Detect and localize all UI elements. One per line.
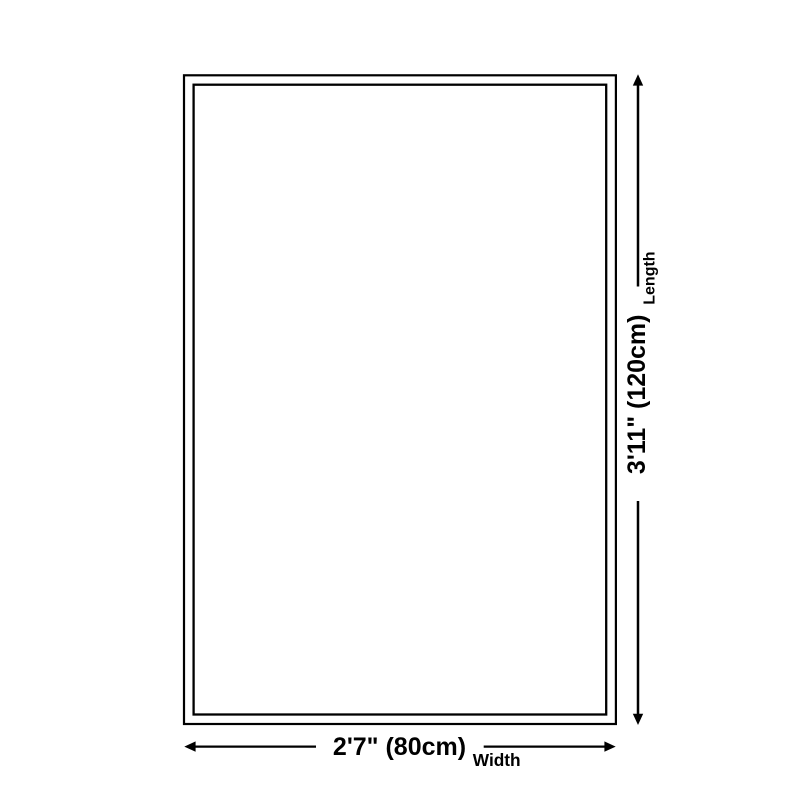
svg-text:Width: Width [473, 750, 521, 770]
svg-text:Length: Length [641, 251, 658, 304]
svg-text:3'11" (120cm): 3'11" (120cm) [623, 315, 651, 475]
svg-text:2'7" (80cm): 2'7" (80cm) [333, 733, 466, 761]
